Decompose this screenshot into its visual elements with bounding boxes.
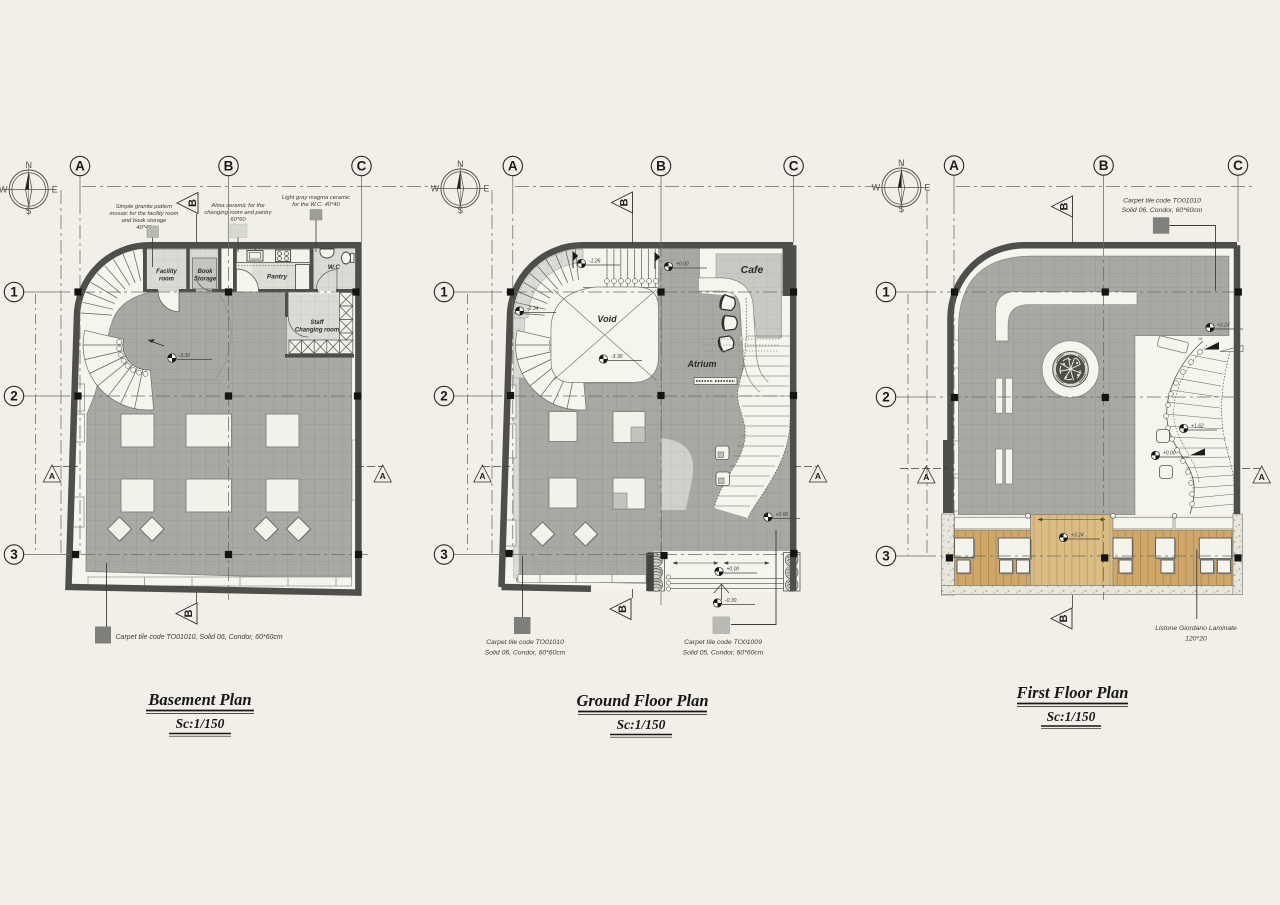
svg-text:Changing room: Changing room [295,328,340,334]
svg-text:B: B [187,199,199,207]
svg-text:+3.24: +3.24 [1217,323,1230,329]
svg-text:Void: Void [597,314,617,324]
svg-text:Solid 06, Condor, 60*60cm: Solid 06, Condor, 60*60cm [1122,207,1203,214]
svg-text:B: B [1099,158,1109,173]
svg-text:Sc:1/150: Sc:1/150 [1047,709,1096,724]
svg-text:+0.00: +0.00 [776,512,789,518]
svg-text:A: A [508,159,518,174]
svg-text:3: 3 [10,547,18,562]
svg-text:+3.24: +3.24 [1071,533,1084,539]
svg-text:2: 2 [440,389,448,404]
svg-text:Carpet tile code TO01010, Soli: Carpet tile code TO01010, Solid 06, Cond… [116,634,283,641]
svg-text:-3.30: -3.30 [611,354,623,360]
svg-text:2: 2 [10,389,18,404]
svg-text:B: B [619,198,631,206]
svg-text:for the W.C. 40*40: for the W.C. 40*40 [292,202,340,208]
svg-text:A: A [49,471,55,481]
svg-text:-1.26: -1.26 [589,259,601,265]
svg-text:C: C [789,159,799,174]
svg-text:Staff: Staff [310,320,324,326]
svg-text:2: 2 [882,390,890,405]
svg-text:3: 3 [440,547,448,562]
svg-text:B: B [656,159,666,174]
svg-text:Simple granite pattern: Simple granite pattern [116,204,173,210]
svg-text:60*60: 60*60 [230,217,246,223]
svg-text:mosaic for the facility room: mosaic for the facility room [110,211,179,217]
svg-text:changing room and pantry: changing room and pantry [204,210,272,216]
svg-text:A: A [380,471,386,481]
svg-text:-0.30: -0.30 [725,598,737,604]
svg-text:1: 1 [882,285,890,300]
svg-text:Cafe: Cafe [741,264,764,276]
svg-text:Facility: Facility [156,269,177,275]
svg-text:Atrium: Atrium [687,359,717,369]
svg-text:First Floor Plan: First Floor Plan [1016,683,1129,702]
svg-text:3: 3 [882,549,890,564]
svg-text:Solid 06, Condor, 60*60cm: Solid 06, Condor, 60*60cm [485,650,566,657]
svg-text:A: A [1259,472,1265,482]
svg-text:16: 16 [1198,337,1202,341]
svg-text:1: 1 [440,285,448,300]
svg-text:C: C [357,159,367,174]
svg-text:Listone Giordano Laminate: Listone Giordano Laminate [1155,625,1237,632]
svg-text:A: A [923,472,929,482]
svg-text:Sc:1/150: Sc:1/150 [617,717,666,732]
svg-text:Basement Plan: Basement Plan [147,690,251,709]
svg-text:A: A [815,471,821,481]
svg-text:Alma ceramic for the: Alma ceramic for the [210,203,265,209]
svg-text:-2.34: -2.34 [527,306,539,312]
svg-text:B: B [1058,614,1070,622]
svg-text:+0.00: +0.00 [676,262,689,268]
svg-text:A: A [75,159,85,174]
svg-text:+1.62: +1.62 [1191,423,1204,429]
svg-text:Carpet tile code TO01010: Carpet tile code TO01010 [486,639,564,646]
svg-text:A: A [479,471,485,481]
svg-text:-3.30: -3.30 [179,353,191,359]
svg-text:B: B [224,159,234,174]
svg-text:room: room [159,277,175,283]
svg-text:1: 1 [10,285,18,300]
svg-text:Carpet tile code TO01009: Carpet tile code TO01009 [684,639,762,646]
svg-text:Ground Floor Plan: Ground Floor Plan [576,691,708,710]
svg-text:Light gray magma ceramic: Light gray magma ceramic [282,195,350,201]
svg-text:and book storage: and book storage [122,218,168,224]
svg-text:Book: Book [198,269,214,275]
svg-text:Solid 05, Condor, 60*60cm: Solid 05, Condor, 60*60cm [683,650,764,657]
svg-text:Sc:1/150: Sc:1/150 [176,716,225,731]
svg-text:+0.00: +0.00 [1163,450,1176,456]
svg-text:A: A [949,158,959,173]
svg-text:C: C [1233,158,1243,173]
svg-text:+0.00: +0.00 [727,567,740,573]
svg-text:120*20: 120*20 [1185,636,1207,643]
svg-text:Pantry: Pantry [267,274,288,281]
svg-text:B: B [183,609,195,617]
svg-text:Carpet tile code TO01010: Carpet tile code TO01010 [1123,198,1201,205]
svg-text:B: B [1059,202,1071,210]
svg-text:B: B [617,605,629,613]
